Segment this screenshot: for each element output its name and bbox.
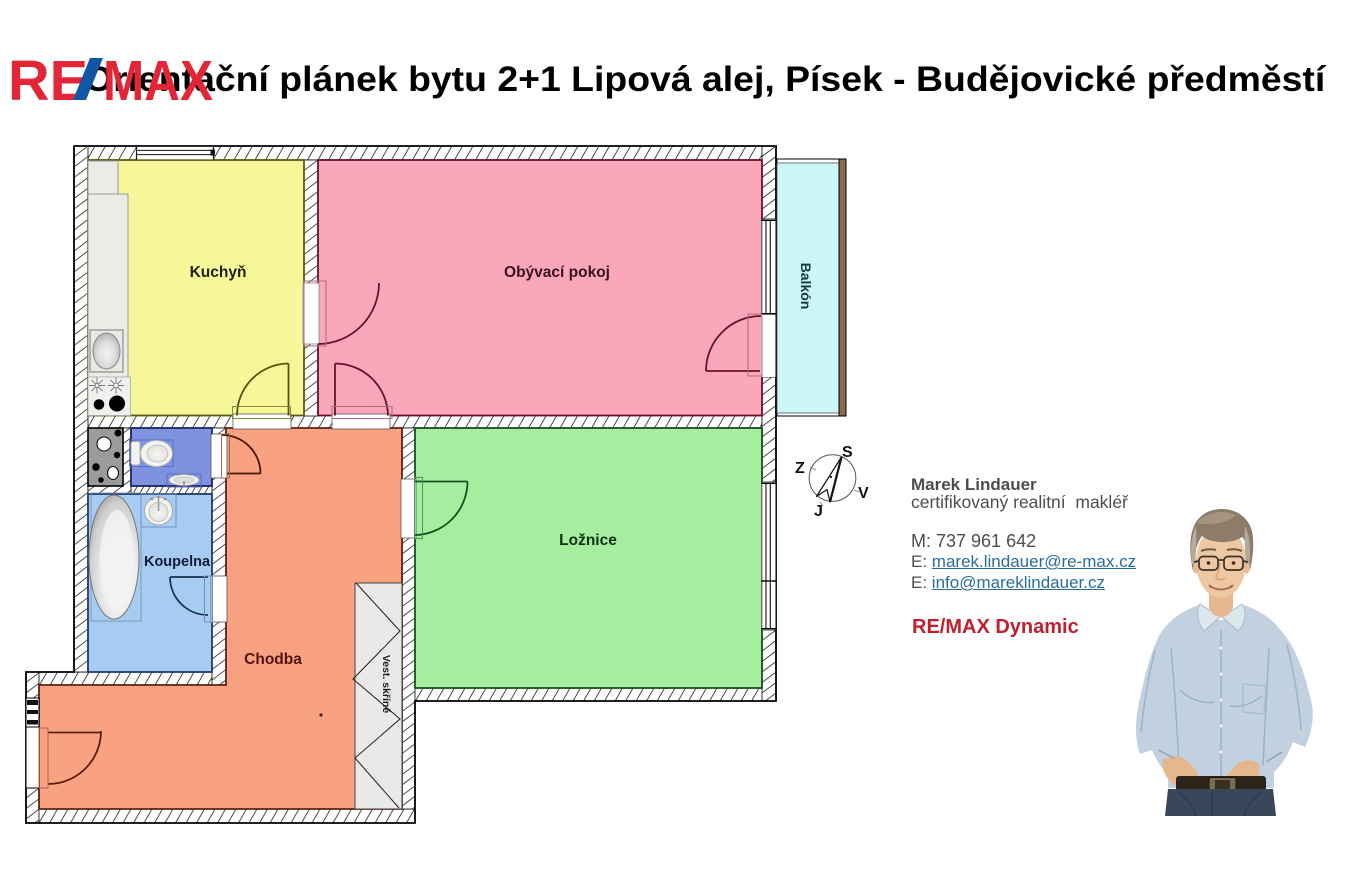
svg-text:Ložnice: Ložnice — [559, 532, 617, 549]
svg-text:Vest. skříně: Vest. skříně — [380, 655, 392, 714]
svg-text:Balkón: Balkón — [798, 263, 814, 310]
svg-text:Obývací pokoj: Obývací pokoj — [504, 264, 610, 281]
svg-text:Chodba: Chodba — [244, 651, 302, 668]
svg-text:V: V — [858, 485, 869, 502]
svg-text:S: S — [842, 444, 853, 461]
svg-text:Kuchyň: Kuchyň — [190, 264, 247, 281]
svg-text:MAX: MAX — [103, 49, 213, 113]
svg-text:J: J — [814, 503, 823, 520]
svg-text:RE: RE — [8, 49, 88, 113]
svg-text:Z: Z — [795, 460, 805, 477]
svg-text:Koupelna: Koupelna — [144, 554, 211, 570]
